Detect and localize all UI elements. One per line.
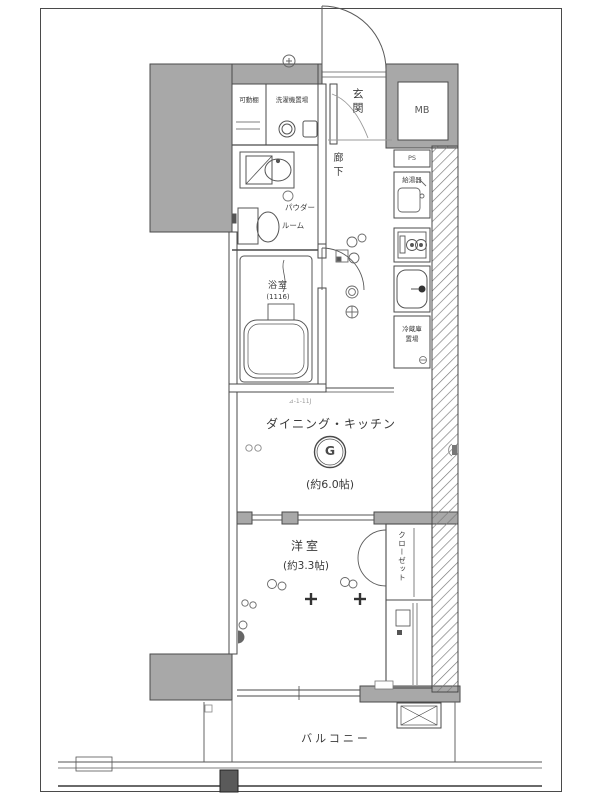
hallway-label: 廊下 xyxy=(331,152,341,180)
toilet-icon xyxy=(232,208,279,244)
washing-machine-icon xyxy=(236,121,317,137)
dk-electrical-symbols xyxy=(246,444,457,456)
sliding-door xyxy=(252,515,374,520)
movable-shelf-label: 可動棚 xyxy=(239,97,259,104)
outlet-symbol xyxy=(420,357,427,364)
powder-room-label-line2: ルーム xyxy=(282,222,304,230)
vanity-icon xyxy=(240,152,294,188)
electrical-symbol xyxy=(283,191,293,201)
ceiling-hook-symbols xyxy=(305,593,366,605)
bathroom-label: 浴室 xyxy=(268,282,288,291)
closet-label: クローゼット xyxy=(398,531,406,582)
refrigerator-label-line1: 冷蔵庫 xyxy=(402,326,422,333)
gas-symbol-letter: G xyxy=(325,445,335,458)
closet-box xyxy=(386,524,432,688)
water-heater-icon xyxy=(398,188,420,212)
partition-lines xyxy=(232,84,394,392)
laundry-label: 洗濯機置場 xyxy=(276,97,309,104)
hatched-common-wall xyxy=(432,146,458,692)
western-room-size-label: (約3.3帖) xyxy=(283,561,329,572)
pipe-space-label: PS xyxy=(408,155,416,162)
powder-room-label-line1: パウダー xyxy=(285,204,315,212)
western-room-label: 洋室 xyxy=(291,540,321,552)
bathroom-unit xyxy=(240,256,312,382)
refrigerator-label-line2: 置場 xyxy=(406,336,419,343)
dk-note: ⊿-1-11J xyxy=(289,399,312,405)
water-heater-label: 給湯器 xyxy=(402,177,422,184)
meter-box-label: MB xyxy=(415,106,430,116)
entrance-door-arc xyxy=(322,6,386,77)
dining-kitchen-size-label: (約6.0帖) xyxy=(306,479,354,490)
dining-kitchen-label: ダイニング・キッチン xyxy=(266,418,396,430)
bedroom-electrical-symbols xyxy=(238,578,357,644)
floor-plan: 玄関 MB 可動棚 洗濯機置場 パウダー ルーム 廊下 PS 浴室 (1116)… xyxy=(0,0,600,800)
kitchen-sink-icon xyxy=(397,270,427,308)
stove-icon xyxy=(398,232,427,258)
balcony-window xyxy=(237,686,360,700)
entrance-label: 玄関 xyxy=(352,88,363,116)
balcony-railing xyxy=(58,757,542,792)
bathroom-size-label: (1116) xyxy=(266,294,289,301)
balcony-label: バルコニー xyxy=(301,733,371,744)
evacuation-hatch-icon xyxy=(397,703,441,728)
closet-doors-arc xyxy=(358,530,386,586)
